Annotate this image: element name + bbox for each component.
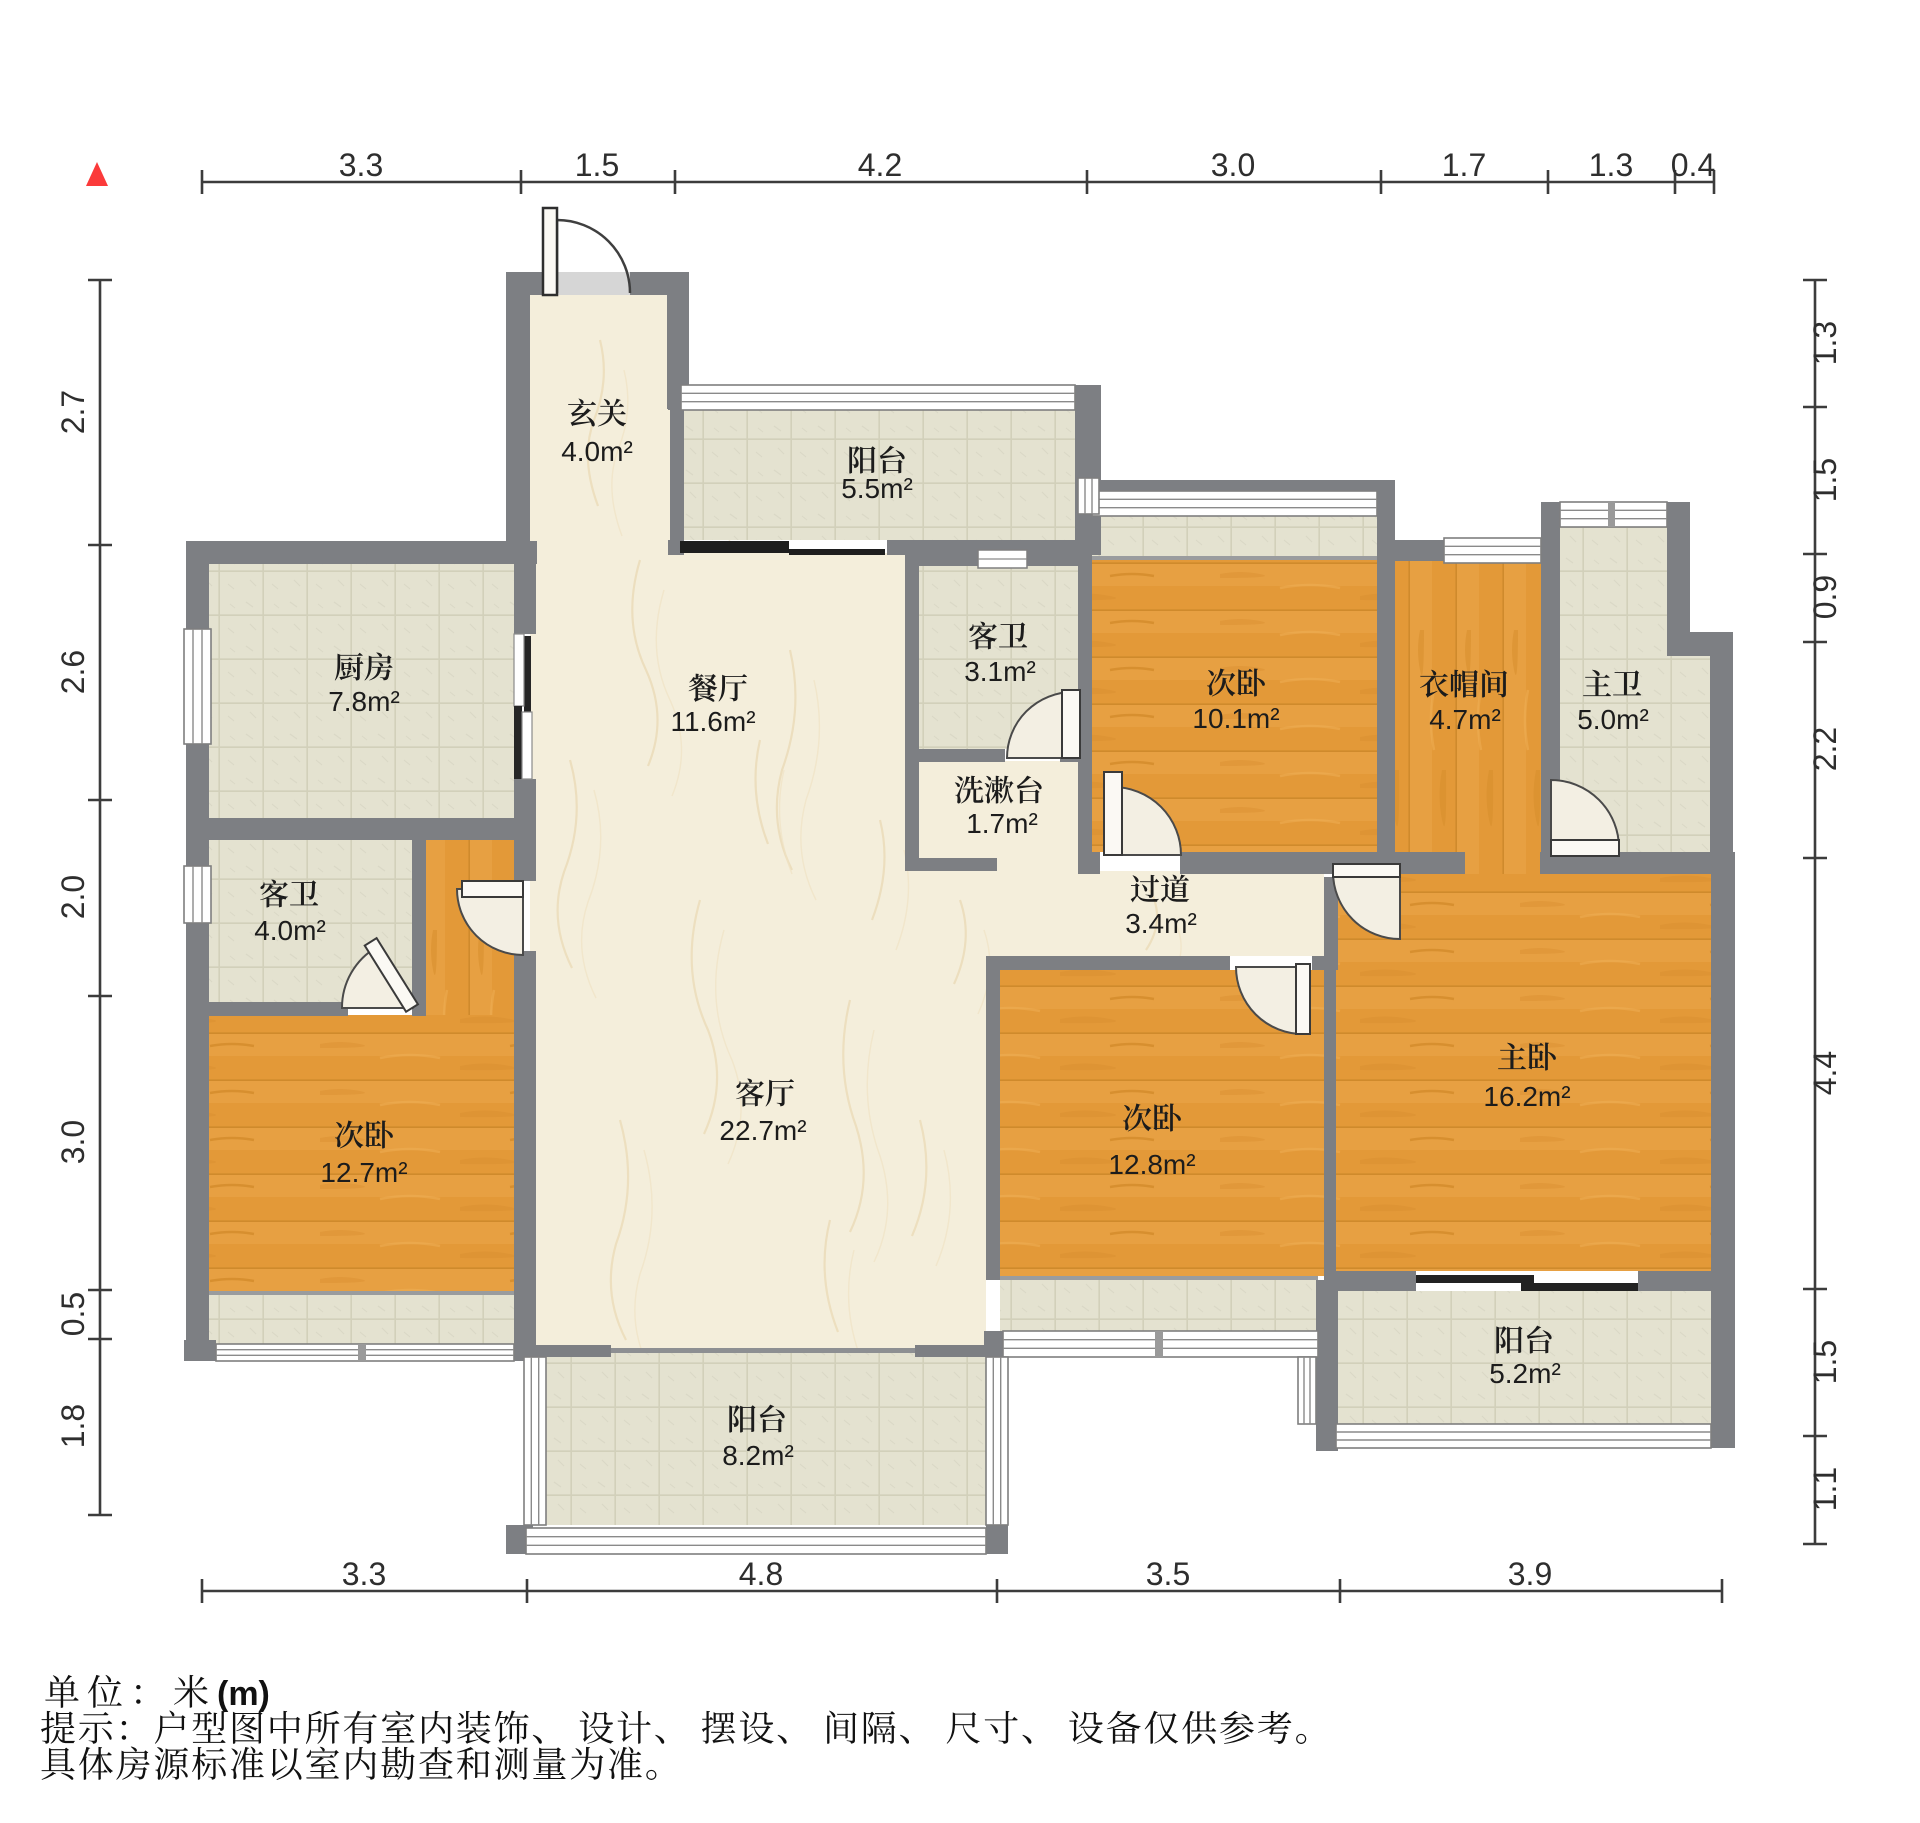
svg-text:3.5: 3.5	[1146, 1556, 1190, 1592]
svg-text:4.4: 4.4	[1807, 1051, 1843, 1095]
svg-text:4.2: 4.2	[858, 147, 902, 183]
svg-text:10.1m²: 10.1m²	[1192, 703, 1279, 734]
svg-text:1.3: 1.3	[1807, 321, 1843, 365]
svg-text:8.2m²: 8.2m²	[722, 1440, 794, 1471]
svg-text:0.5: 0.5	[55, 1292, 91, 1336]
svg-text:5.0m²: 5.0m²	[1577, 704, 1649, 735]
svg-text:22.7m²: 22.7m²	[719, 1115, 806, 1146]
svg-text:0.9: 0.9	[1807, 575, 1843, 619]
svg-text:4.0m²: 4.0m²	[254, 915, 326, 946]
svg-text:12.8m²: 12.8m²	[1108, 1149, 1195, 1180]
svg-text:5.5m²: 5.5m²	[841, 473, 913, 504]
svg-text:3.3: 3.3	[342, 1556, 386, 1592]
svg-text:(m): (m)	[217, 1675, 270, 1713]
svg-text:1.5: 1.5	[1807, 458, 1843, 502]
svg-text:1.7m²: 1.7m²	[966, 808, 1038, 839]
svg-text:2.6: 2.6	[55, 650, 91, 694]
svg-text:3.9: 3.9	[1508, 1556, 1552, 1592]
svg-text:16.2m²: 16.2m²	[1483, 1081, 1570, 1112]
svg-text:1.7: 1.7	[1442, 147, 1486, 183]
svg-text:3.0: 3.0	[1211, 147, 1255, 183]
svg-text:3.1m²: 3.1m²	[964, 656, 1036, 687]
svg-text:12.7m²: 12.7m²	[320, 1157, 407, 1188]
svg-text:1.8: 1.8	[55, 1404, 91, 1448]
svg-text:1.3: 1.3	[1589, 147, 1633, 183]
svg-text:3.4m²: 3.4m²	[1125, 908, 1197, 939]
svg-text:1.1: 1.1	[1807, 1467, 1843, 1511]
svg-text:4.8: 4.8	[739, 1556, 783, 1592]
svg-text:4.0m²: 4.0m²	[561, 436, 633, 467]
svg-text:3.0: 3.0	[55, 1120, 91, 1164]
svg-text:5.2m²: 5.2m²	[1489, 1358, 1561, 1389]
svg-text:0.4: 0.4	[1671, 147, 1715, 183]
svg-text:3.3: 3.3	[339, 147, 383, 183]
svg-text:1.5: 1.5	[575, 147, 619, 183]
svg-text:7.8m²: 7.8m²	[328, 686, 400, 717]
svg-text:4.7m²: 4.7m²	[1429, 704, 1501, 735]
svg-text:11.6m²: 11.6m²	[670, 706, 755, 737]
svg-text:2.7: 2.7	[55, 390, 91, 434]
svg-text:2.2: 2.2	[1807, 727, 1843, 771]
svg-text:1.5: 1.5	[1807, 1340, 1843, 1384]
svg-text:2.0: 2.0	[55, 875, 91, 919]
